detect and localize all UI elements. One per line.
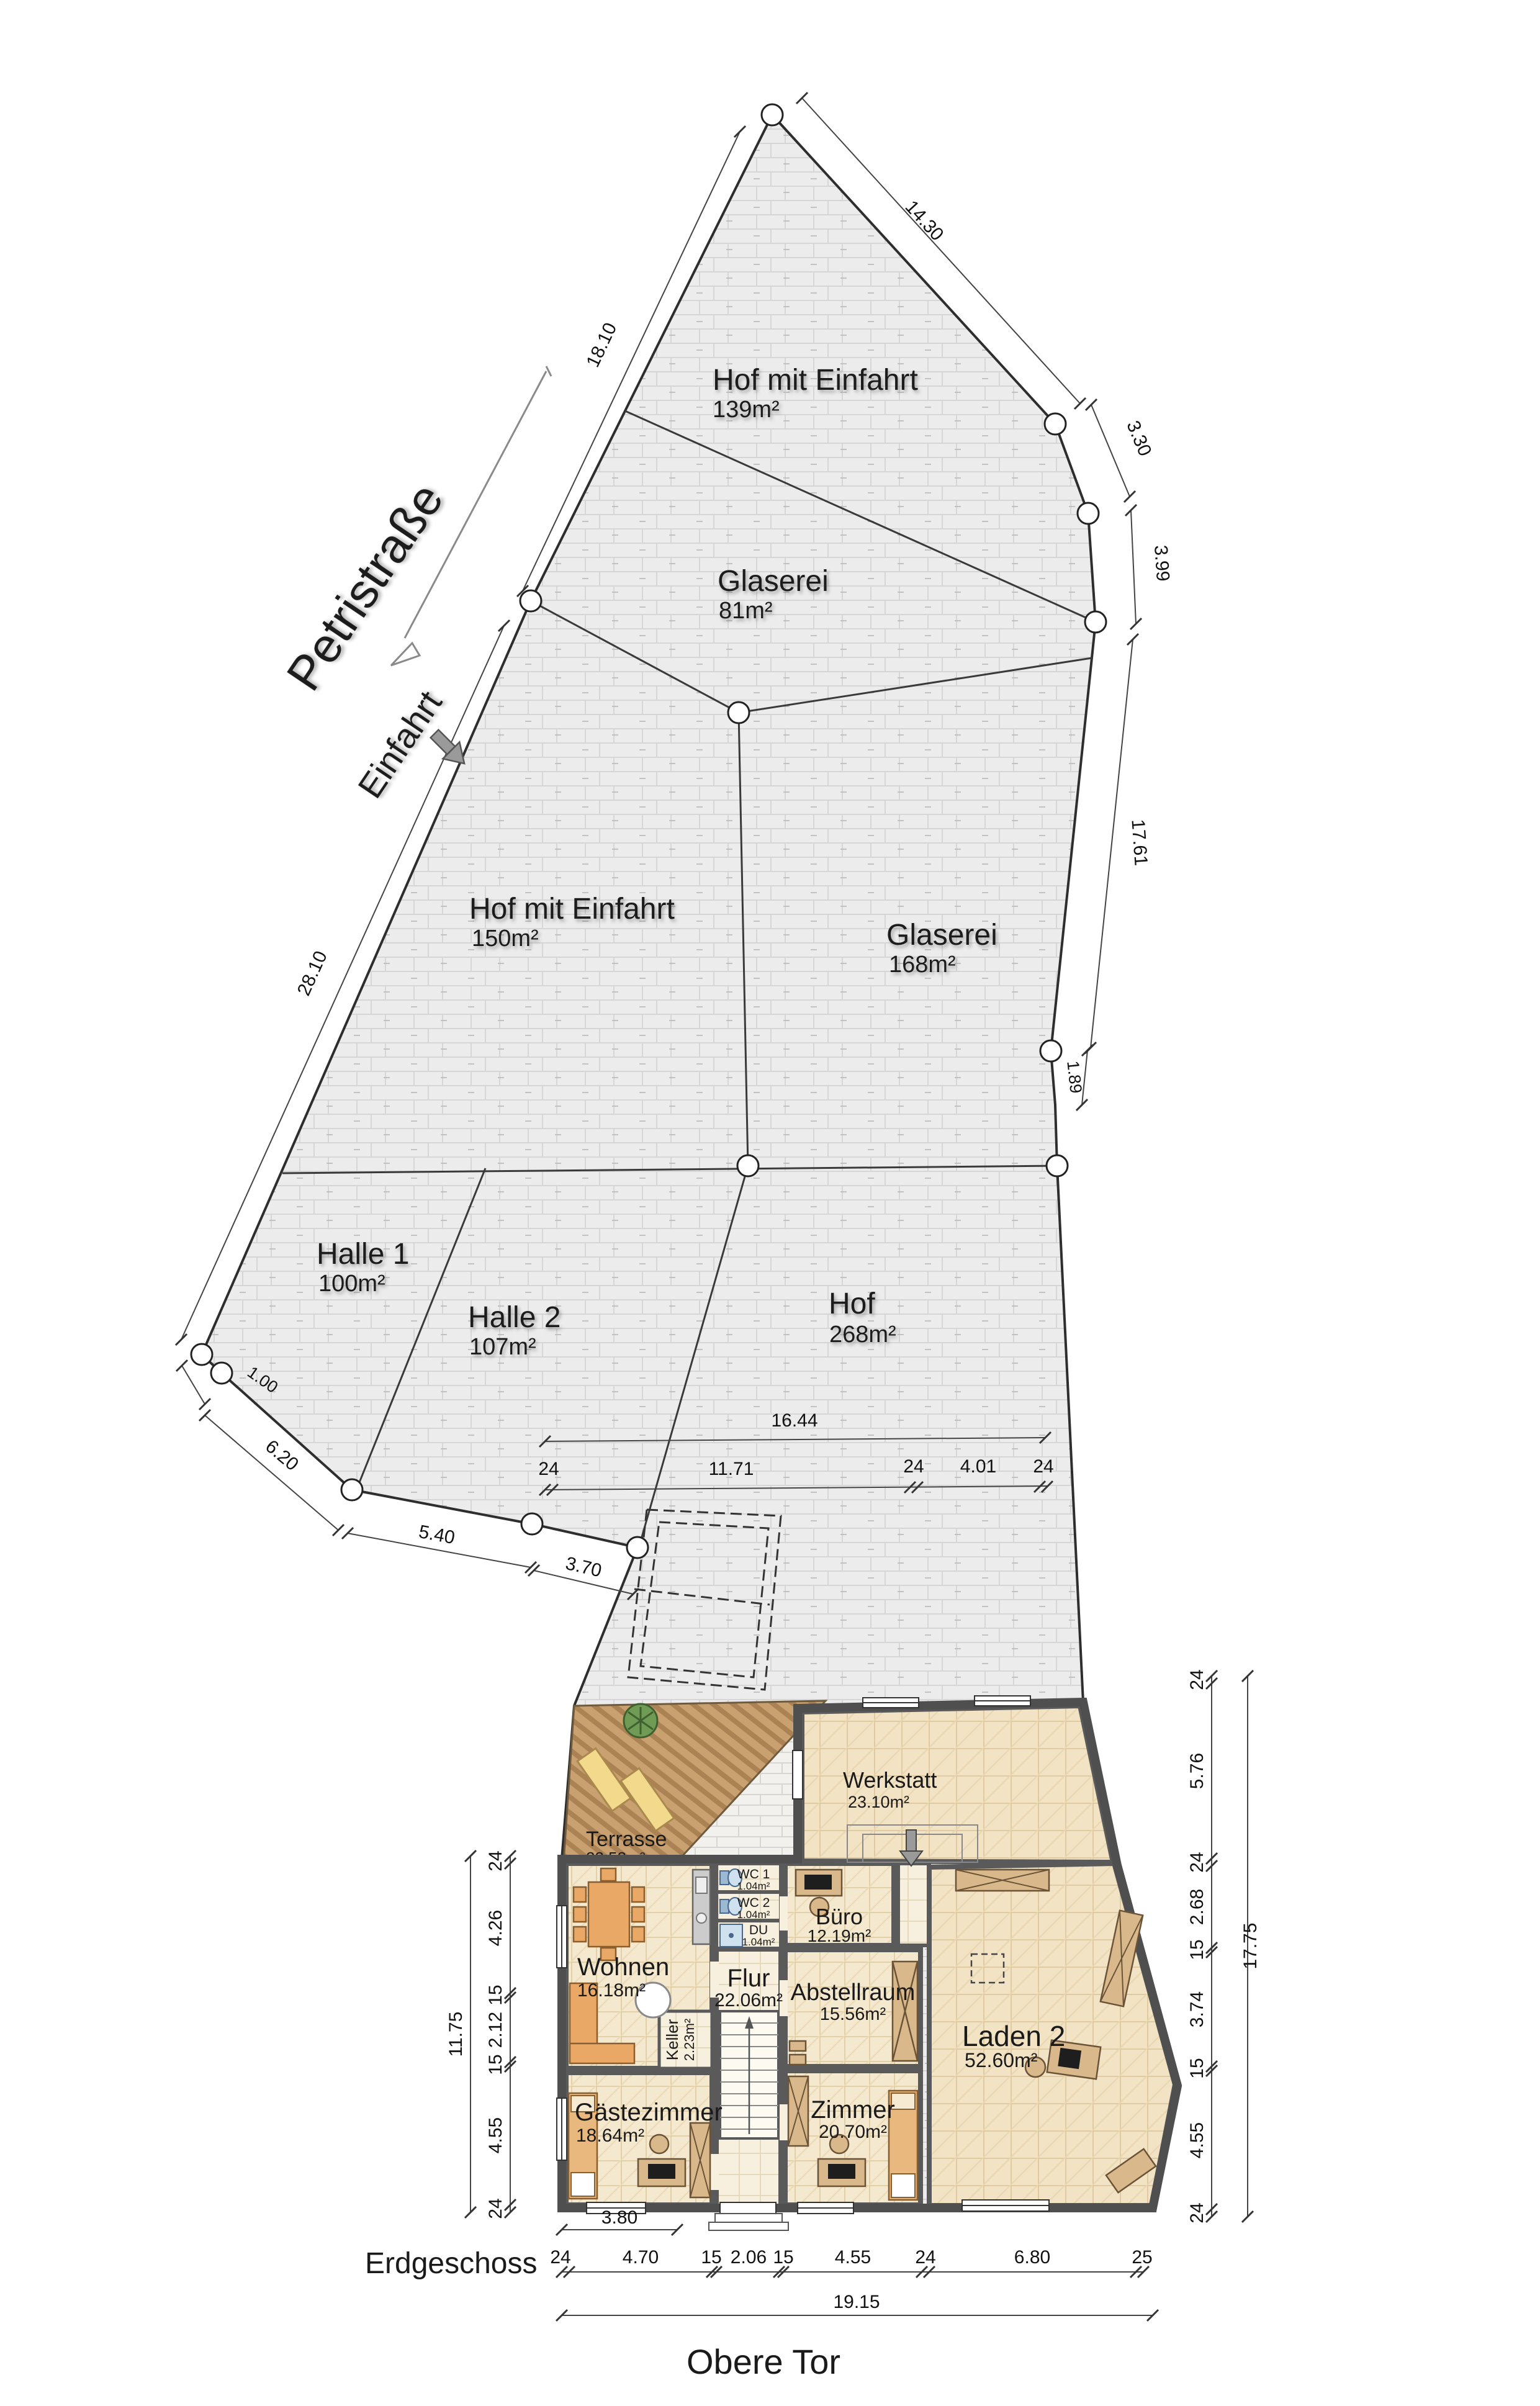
wc2-area: 1.04m² (737, 1909, 770, 1921)
wc1-area: 1.04m² (737, 1880, 770, 1892)
gaestezimmer-label: Gästezimmer (575, 2099, 723, 2126)
floor-title: Erdgeschoss (365, 2247, 537, 2280)
dim-bot-5: 4.55 (835, 2247, 871, 2268)
dim-right-2: 24 (1187, 1852, 1207, 1872)
bottom-street-title: Obere Tor (687, 2342, 840, 2381)
laden2-area: 52.60m² (965, 2049, 1038, 2071)
glaserei81-label: Glaserei (718, 565, 829, 598)
dim-bot-1: 4.70 (623, 2247, 659, 2268)
dim-ne-edge: 14.30 (901, 197, 948, 245)
abstellraum-area: 15.56m² (820, 2004, 886, 2024)
einfahrt-label: Einfahrt (350, 683, 449, 805)
site-plan-canvas: Terrasse 22.53m² (0, 0, 1540, 2406)
du-area: 1.04m² (742, 1936, 775, 1948)
dim-mid-2: 24 (903, 1456, 924, 1477)
dim-sw3: 5.40 (417, 1521, 456, 1548)
glaserei168-area: 168m² (889, 952, 956, 978)
glaserei168-label: Glaserei (886, 919, 997, 952)
dim-mid-1: 11.71 (709, 1459, 754, 1479)
werkstatt-area: 23.10m² (848, 1793, 909, 1811)
dim-street-lower: 28.10 (294, 948, 331, 999)
dim-mid-3: 4.01 (960, 1456, 996, 1477)
wc1-label: WC 1 (737, 1867, 770, 1881)
zimmer-area: 20.70m² (819, 2122, 887, 2142)
dim-bot-2: 15 (701, 2247, 721, 2268)
glaserei81-area: 81m² (719, 598, 773, 624)
dim-bot-8: 25 (1132, 2247, 1152, 2268)
dim-bottom-total: 19.15 (833, 2292, 880, 2312)
hof139-label: Hof mit Einfahrt (713, 364, 918, 397)
keller-label: Keller (663, 2019, 682, 2060)
dim-e4: 1.89 (1063, 1060, 1085, 1094)
dim-mid-0: 24 (538, 1459, 559, 1479)
hof150-label: Hof mit Einfahrt (469, 893, 675, 926)
kitchen-counter-icon (693, 1870, 710, 1944)
flur-area: 22.06m² (714, 1990, 783, 2011)
dim-e2: 3.99 (1150, 544, 1173, 582)
dim-bot-7: 6.80 (1014, 2247, 1050, 2268)
shower-icon-du (720, 1924, 742, 1947)
wohnen-label: Wohnen (577, 1953, 669, 1981)
keller-label-group: Keller 2.23m² (663, 2019, 697, 2061)
dim-right-0: 24 (1187, 1669, 1207, 1690)
laden2-label: Laden 2 (962, 2020, 1065, 2052)
dim-bot-0: 24 (550, 2247, 570, 2268)
halle1-label: Halle 1 (317, 1238, 409, 1271)
du-label: DU (749, 1923, 768, 1937)
dim-e1: 3.30 (1122, 418, 1155, 459)
dim-left-total: 11.75 (446, 2012, 466, 2057)
flur-label: Flur (727, 1965, 770, 1992)
dim-e3: 17.61 (1127, 819, 1151, 867)
terrasse-label: Terrasse (586, 1827, 667, 1851)
dim-street-upper: 18.10 (582, 320, 621, 371)
dim-bot-6: 24 (915, 2247, 935, 2268)
dim-left-6: 24 (485, 2198, 506, 2219)
dim-left-1: 4.26 (485, 1910, 506, 1946)
dim-bot-4: 15 (773, 2247, 793, 2268)
dim-left-4: 15 (485, 2054, 506, 2075)
halle1-area: 100m² (318, 1271, 385, 1297)
hof268-area: 268m² (829, 1322, 896, 1348)
wc2-label: WC 2 (737, 1896, 770, 1910)
hof150-area: 150m² (472, 926, 539, 952)
buero-label: Büro (816, 1904, 863, 1929)
buero-area: 12.19m² (808, 1926, 871, 1945)
dim-right-5: 3.74 (1187, 1991, 1207, 2027)
stairs-icon (720, 2011, 778, 2138)
hof139-area: 139m² (713, 397, 780, 423)
halle2-area: 107m² (469, 1334, 536, 1360)
dim-hof-width: 16.44 (771, 1410, 817, 1431)
dim-left-2: 15 (485, 1985, 506, 2005)
dim-mid-4: 24 (1033, 1456, 1053, 1477)
abstellraum-label: Abstellraum (791, 1980, 916, 2006)
dim-right-total: 17.75 (1240, 1922, 1261, 1969)
dim-right-8: 24 (1187, 2202, 1207, 2223)
dim-right-3: 2.68 (1187, 1889, 1207, 1925)
dim-right-1: 5.76 (1187, 1753, 1207, 1789)
werkstatt-label: Werkstatt (843, 1767, 937, 1793)
dim-right-4: 15 (1187, 1939, 1207, 1960)
keller-area: 2.23m² (682, 2019, 697, 2061)
dim-bot-3: 2.06 (731, 2247, 767, 2268)
dim-sw4: 3.70 (564, 1553, 603, 1581)
dim-right-6: 15 (1187, 2058, 1207, 2078)
room-vestibule (898, 1863, 929, 1945)
hof268-label: Hof (829, 1287, 875, 1320)
dim-left-3: 2.12 (485, 2012, 506, 2048)
floorplan-page: Terrasse 22.53m² (0, 0, 1540, 2406)
dim-bottom-sub: 3.80 (601, 2207, 637, 2228)
dim-left-0: 24 (485, 1850, 506, 1871)
gaestezimmer-area: 18.64m² (576, 2125, 644, 2146)
plant-icon (624, 1704, 657, 1737)
street-name-label: Petristraße (276, 473, 453, 700)
dim-left-5: 4.55 (485, 2117, 506, 2153)
halle2-label: Halle 2 (468, 1301, 561, 1334)
zimmer-label: Zimmer (811, 2096, 895, 2124)
entrance-steps (709, 2214, 788, 2230)
dim-right-7: 4.55 (1187, 2122, 1207, 2158)
wohnen-area: 16.18m² (577, 1980, 646, 2001)
